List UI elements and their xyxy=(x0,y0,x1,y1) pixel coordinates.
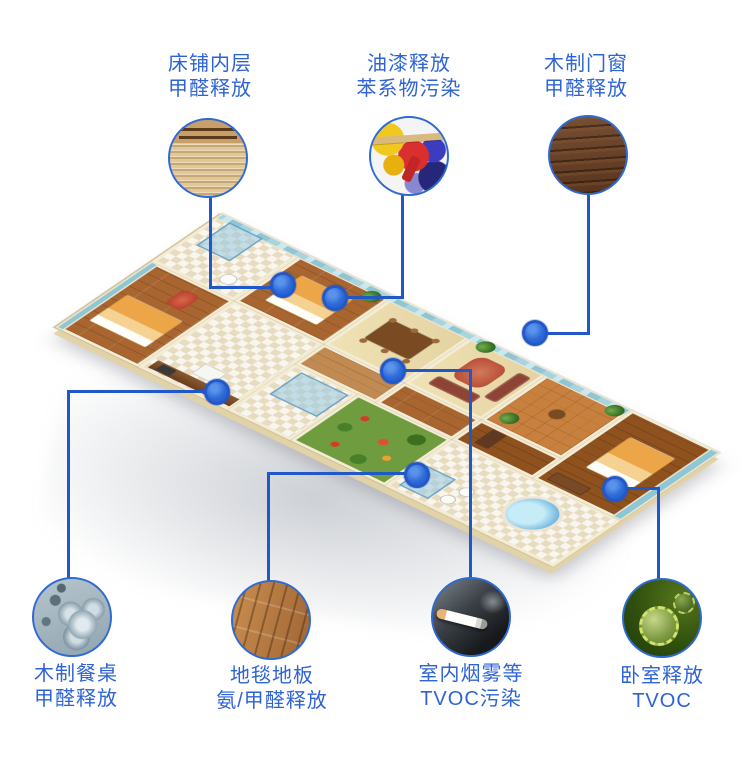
label-bedroom-release: 卧室释放 TVOC xyxy=(620,664,704,714)
label-line: 甲醛释放 xyxy=(544,77,628,102)
connector-window-vertical xyxy=(587,193,590,335)
label-line: 室内烟雾等 xyxy=(419,662,524,687)
label-bed-inner-layer: 床铺内层 甲醛释放 xyxy=(168,52,252,102)
bed-slats-photo xyxy=(168,118,248,198)
rug xyxy=(164,289,201,311)
connector-paint-horizontal xyxy=(340,296,404,299)
label-indoor-smoke: 室内烟雾等 TVOC污染 xyxy=(419,662,524,712)
hotspot-kitchen xyxy=(204,379,230,405)
label-line: 氨/甲醛释放 xyxy=(216,689,328,714)
label-wooden-dining-table: 木制餐桌 甲醛释放 xyxy=(34,662,118,712)
label-wooden-doors-windows: 木制门窗 甲醛释放 xyxy=(544,52,628,102)
connector-bed-vertical xyxy=(209,196,212,288)
hotspot-corridor-floor xyxy=(404,462,430,488)
cafe-table xyxy=(546,408,569,421)
label-carpet-floor: 地毯地板 氨/甲醛释放 xyxy=(216,664,328,714)
connector-tvoc-vertical xyxy=(657,487,660,580)
molecule-spheres-photo xyxy=(32,577,112,657)
label-line: 地毯地板 xyxy=(216,664,328,689)
label-line: TVOC污染 xyxy=(419,687,524,712)
label-line: TVOC xyxy=(620,689,704,714)
sink xyxy=(437,493,460,506)
connector-paint-vertical xyxy=(401,194,404,299)
label-line: 甲醛释放 xyxy=(34,687,118,712)
label-line: 木制餐桌 xyxy=(34,662,118,687)
sink xyxy=(216,272,241,287)
desk xyxy=(474,429,507,449)
connector-floor-horizontal xyxy=(268,472,418,475)
connector-smoke-vertical xyxy=(469,369,472,579)
label-line: 甲醛释放 xyxy=(168,77,252,102)
jacuzzi-tub xyxy=(489,489,576,539)
label-line: 床铺内层 xyxy=(168,52,252,77)
label-line: 木制门窗 xyxy=(544,52,628,77)
hotspot-balcony-window xyxy=(522,320,548,346)
sink xyxy=(455,486,478,499)
paint-cans-photo xyxy=(369,116,449,196)
dining-table xyxy=(364,320,435,360)
label-paint-release: 油漆释放 苯系物污染 xyxy=(357,52,462,102)
hotspot-dining-area xyxy=(322,285,348,311)
hotspot-master-bedroom xyxy=(602,476,628,502)
cigarette-photo xyxy=(431,577,511,657)
infographic-canvas: 床铺内层 甲醛释放 油漆释放 苯系物污染 木制门窗 甲醛释放 木制餐桌 甲醛释放… xyxy=(0,0,750,771)
dark-wood-grain-photo xyxy=(548,115,628,195)
connector-table-horizontal xyxy=(68,390,218,393)
label-line: 油漆释放 xyxy=(357,52,462,77)
connector-smoke-horizontal xyxy=(398,369,472,372)
hotspot-bedroom-bed xyxy=(270,272,296,298)
label-line: 苯系物污染 xyxy=(357,77,462,102)
green-virus-photo xyxy=(622,578,702,658)
connector-floor-vertical xyxy=(267,472,270,582)
wood-floor-photo xyxy=(231,580,311,660)
potted-plant xyxy=(495,410,523,426)
connector-table-vertical xyxy=(67,390,70,579)
label-line: 卧室释放 xyxy=(620,664,704,689)
hotspot-living-room xyxy=(380,358,406,384)
